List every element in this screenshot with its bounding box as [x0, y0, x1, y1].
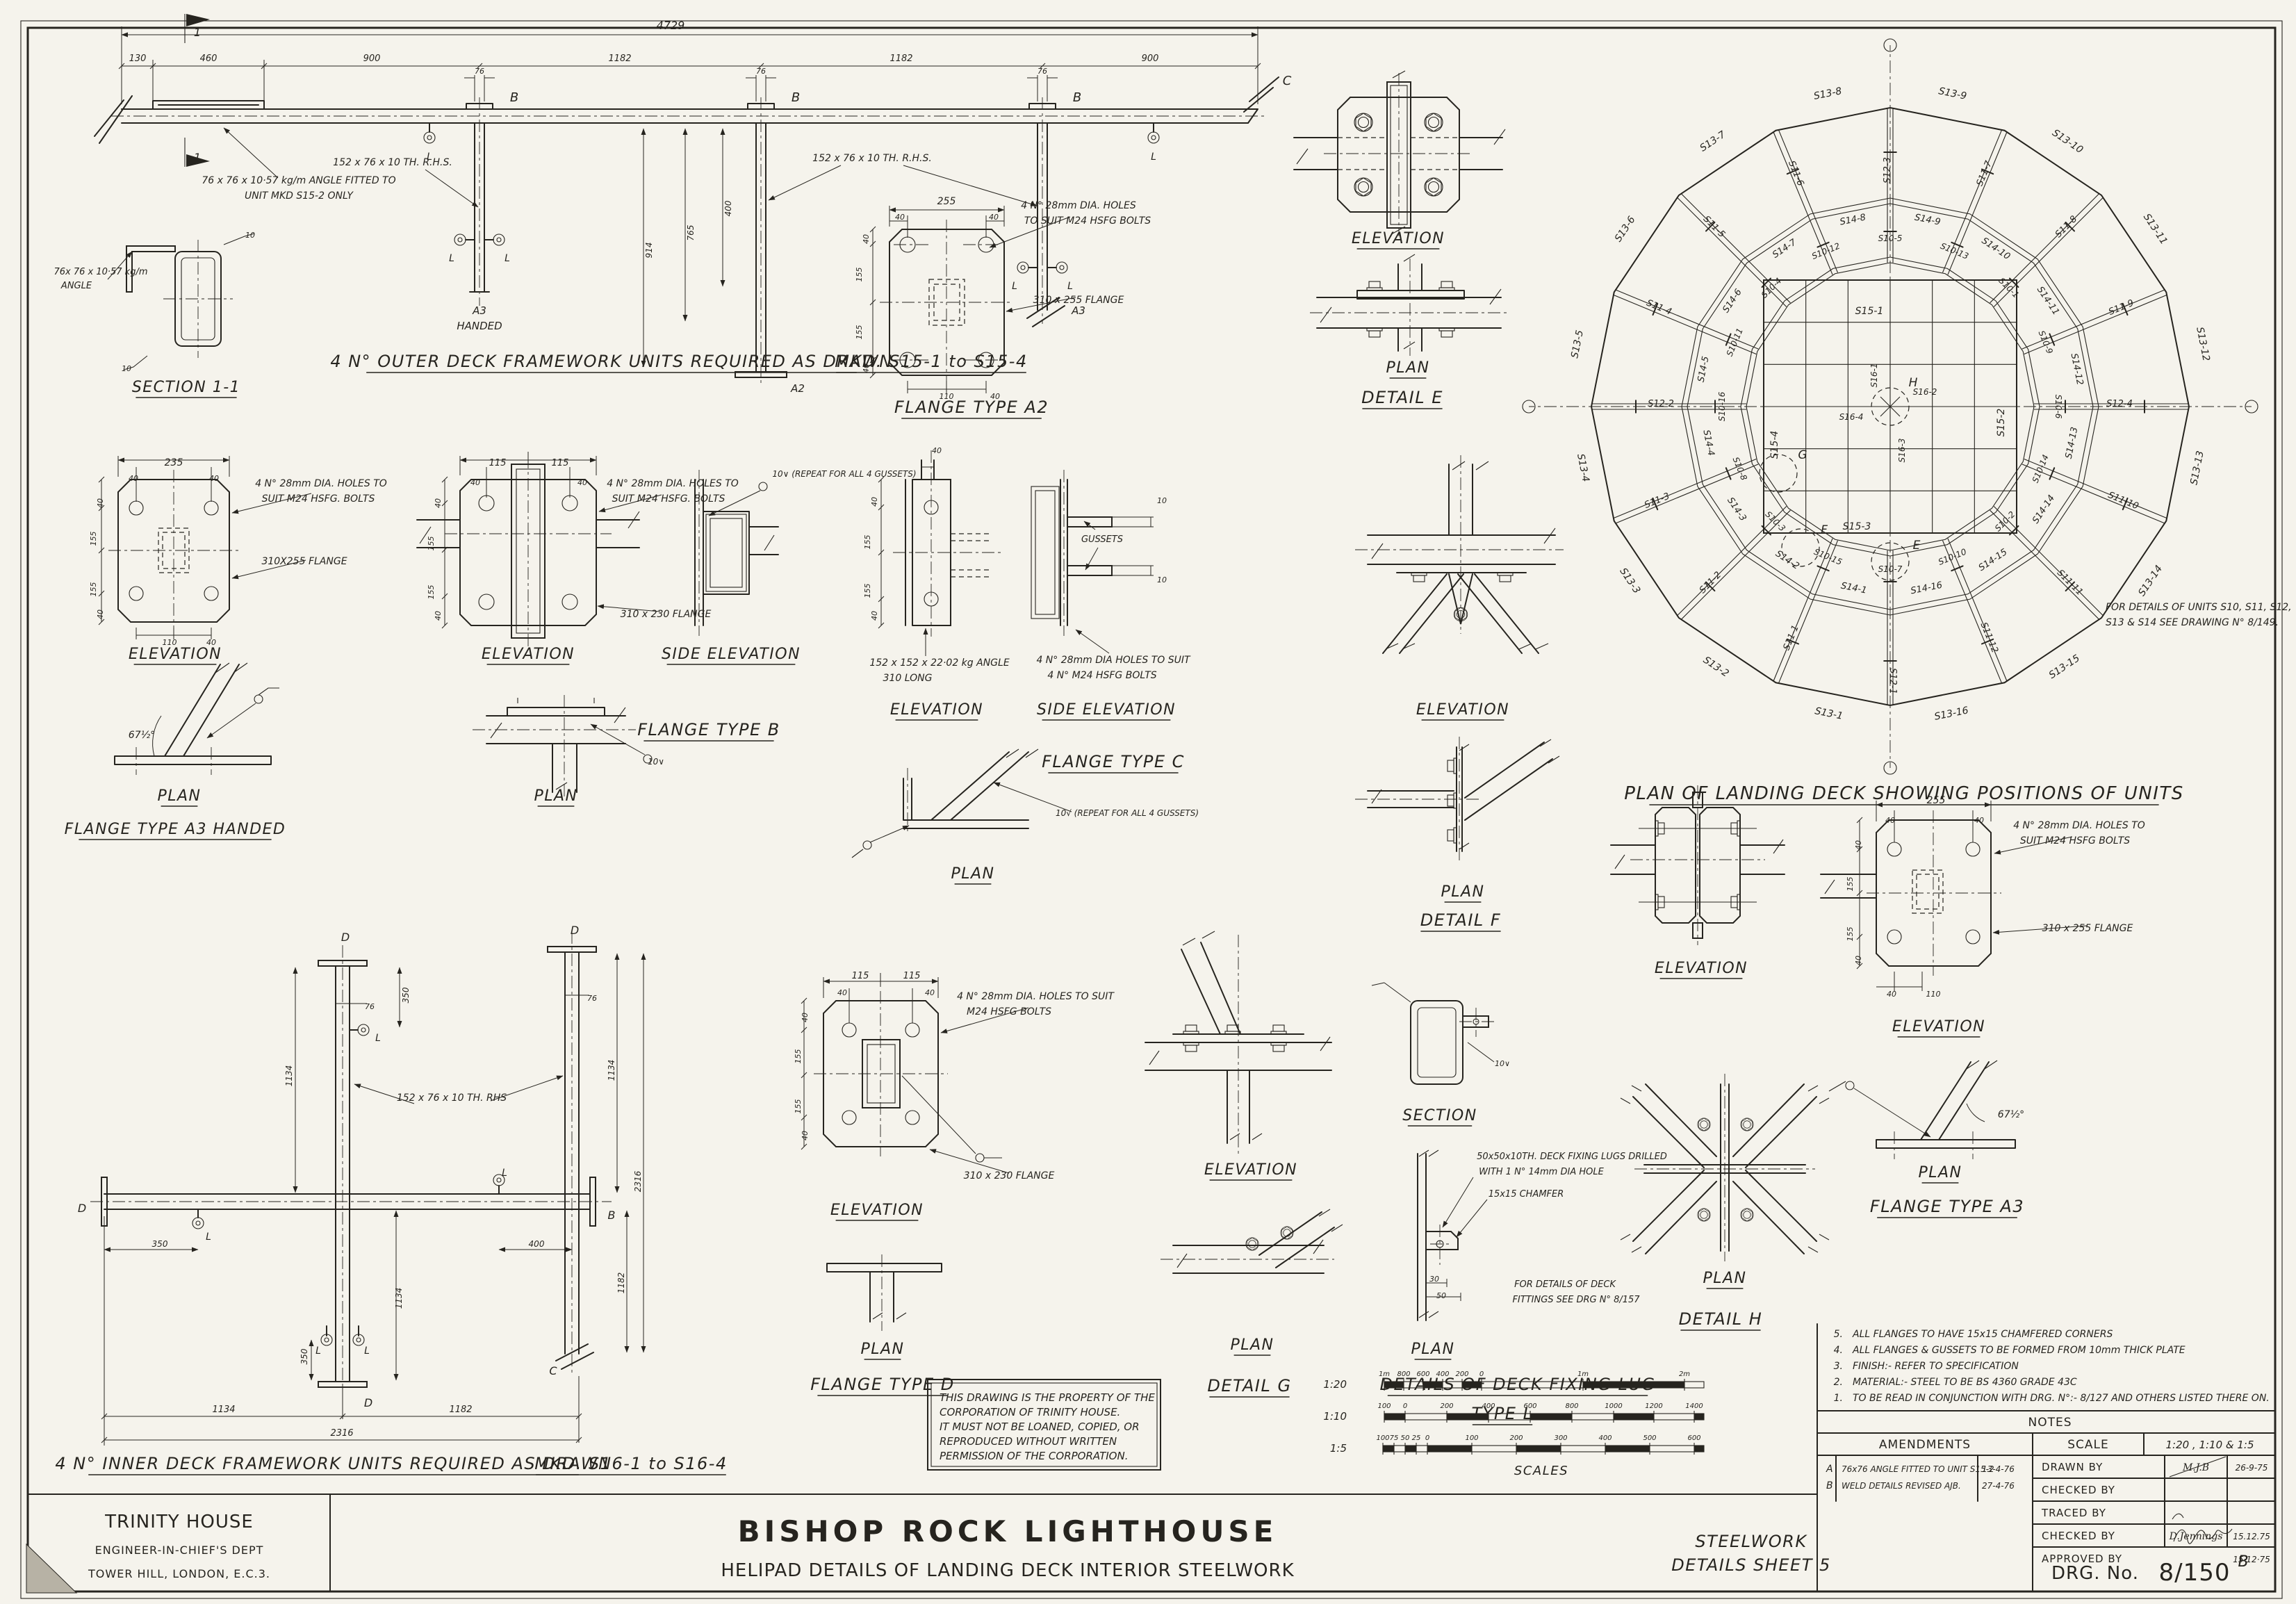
- view-landing-deck-plan: [1523, 39, 2258, 774]
- label: 76x 76 x 10·57 kg/m: [54, 267, 147, 277]
- label: S14-5: [1696, 355, 1712, 383]
- label: 1134: [607, 1060, 616, 1081]
- label: 800: [1397, 1370, 1410, 1378]
- label: D: [571, 924, 579, 937]
- label: 100: [1465, 1434, 1478, 1442]
- label: 40: [989, 213, 999, 222]
- label: FINISH:- REFER TO SPECIFICATION: [1853, 1361, 2019, 1372]
- label: 765: [686, 225, 696, 241]
- label: 900: [1142, 54, 1159, 64]
- label: S13-2: [1701, 655, 1731, 680]
- label: 4 N° 28mm DIA HOLES TO SUIT: [1036, 655, 1191, 666]
- label: 1182: [608, 54, 631, 64]
- label: S11-4: [1645, 298, 1673, 318]
- label: 152 x 152 x 22·02 kg ANGLE: [869, 657, 1009, 669]
- label: 4 N° OUTER DECK FRAMEWORK UNITS REQUIRED…: [330, 352, 892, 371]
- label: M24 HSFG BOLTS: [967, 1006, 1051, 1017]
- label: S10-16: [1717, 391, 1727, 421]
- label: PLAN: [534, 787, 577, 805]
- label: B: [1073, 90, 1081, 105]
- label: S16-1: [1869, 363, 1879, 388]
- label: 50: [1436, 1291, 1446, 1300]
- label: 3.: [1834, 1361, 1843, 1372]
- label: DETAIL H: [1679, 1309, 1763, 1329]
- label: S12-4: [2106, 399, 2133, 409]
- label: 1182: [449, 1405, 472, 1415]
- label: 155: [794, 1099, 803, 1114]
- label: S14-3: [1725, 496, 1748, 523]
- signoff-label: CHECKED BY: [2042, 1484, 2115, 1496]
- label: 800: [1565, 1402, 1578, 1410]
- label: G: [1798, 448, 1807, 462]
- label: 155: [855, 268, 864, 282]
- label: S11-11: [2055, 568, 2085, 598]
- label: 40: [870, 497, 879, 507]
- label: 1400: [1685, 1402, 1703, 1410]
- label: E: [1913, 539, 1921, 553]
- label: 76: [1038, 67, 1047, 76]
- label: 155: [863, 535, 872, 550]
- label: 50x50x10TH. DECK FIXING LUGS DRILLED: [1477, 1152, 1667, 1162]
- label: 460: [200, 54, 218, 64]
- label: H: [1909, 376, 1918, 390]
- label: 1134: [212, 1405, 235, 1415]
- label: ELEVATION: [1416, 701, 1509, 719]
- label: S13-16: [1933, 705, 1969, 722]
- label: S12-3: [1883, 157, 1893, 183]
- label: 255: [937, 196, 956, 207]
- view-inner-deck-framework: DDDDBCLLLLL35076761134113423161182350400…: [55, 924, 727, 1475]
- label: S14-12: [2069, 352, 2085, 386]
- label: 40: [1854, 840, 1863, 850]
- label: PLAN: [951, 865, 994, 883]
- label: 10: [1157, 575, 1167, 584]
- label: 0: [1403, 1402, 1407, 1410]
- label: 40: [837, 988, 847, 997]
- label: 67½°: [129, 730, 155, 741]
- label: S13-4: [1575, 453, 1591, 483]
- label: 40: [862, 363, 871, 373]
- label: 155: [794, 1049, 803, 1064]
- label: MKD. S16-1 to S16-4: [534, 1454, 727, 1473]
- label: 26-9-75: [2236, 1463, 2268, 1473]
- label: 40: [470, 478, 480, 487]
- label: 400: [1436, 1370, 1449, 1378]
- label: S13-9: [1937, 85, 1967, 102]
- label: FOR DETAILS OF UNITS S10, S11, S12,: [2106, 602, 2292, 613]
- label: 40: [96, 498, 105, 508]
- label: 350: [152, 1239, 168, 1249]
- label: 100: [1376, 1434, 1389, 1442]
- label: S10-2: [1993, 509, 2017, 534]
- view-flange-type-a2: 25540404015515540110404 N° 28mm DIA. HOL…: [855, 196, 1151, 418]
- label: S12-1: [1887, 668, 1898, 694]
- label: 27-4-76: [1982, 1481, 2015, 1491]
- label: 310 x 255 FLANGE: [1033, 295, 1124, 306]
- label: S15-1: [1855, 306, 1884, 317]
- label: L: [449, 253, 454, 264]
- label: TO SUIT M24 HSFG BOLTS: [1024, 215, 1151, 227]
- label: 1182: [616, 1272, 626, 1294]
- label: 1m: [1577, 1370, 1589, 1378]
- title-block: NOTES AMENDMENTS SCALE 1:20 , 1:10 & 1:5…: [1817, 1324, 2275, 1591]
- label: B: [510, 90, 518, 105]
- label: 115: [852, 971, 869, 981]
- label: 1182: [889, 54, 912, 64]
- label: 350: [401, 987, 411, 1003]
- label: 1: [194, 26, 201, 39]
- label: S13-14: [2136, 564, 2165, 598]
- label: 1: [194, 151, 201, 164]
- label: FLANGE TYPE A2: [894, 398, 1049, 417]
- label: ELEVATION: [1892, 1018, 1985, 1036]
- label: 1:10: [1323, 1410, 1347, 1423]
- label: 4729: [657, 19, 685, 32]
- bottom-strip: TRINITY HOUSE ENGINEER-IN-CHIEF'S DEPT T…: [26, 1494, 1831, 1593]
- label: S11-1: [1782, 623, 1801, 652]
- label: 1:20: [1323, 1378, 1347, 1391]
- label: S14-9: [1914, 213, 1942, 228]
- label: WITH 1 N° 14mm DIA HOLE: [1479, 1167, 1604, 1177]
- label: 110: [1926, 990, 1941, 999]
- scale-label: SCALE: [2067, 1438, 2109, 1452]
- label: ELEVATION: [1655, 960, 1748, 977]
- amendments-header: AMENDMENTS: [1879, 1438, 1971, 1452]
- label: S14-16: [1910, 580, 1943, 597]
- signoff-label: DRAWN BY: [2042, 1461, 2103, 1473]
- label: FLANGE TYPE D: [810, 1375, 955, 1394]
- label: 155: [1846, 927, 1855, 942]
- label: PLAN: [157, 787, 201, 805]
- label: HANDED: [457, 320, 502, 332]
- label: 76 x 76 x 10·57 kg/m ANGLE FITTED TO: [202, 175, 395, 186]
- label: F: [1821, 523, 1828, 537]
- label: 0: [1479, 1370, 1484, 1378]
- label: 76x76 ANGLE FITTED TO UNIT S15-2: [1842, 1464, 1994, 1474]
- label: 600: [1416, 1370, 1429, 1378]
- notes-list: 5.ALL FLANGES TO HAVE 15x15 CHAMFERED CO…: [1834, 1329, 2270, 1404]
- label: DETAIL F: [1420, 910, 1501, 930]
- label: 2316: [330, 1428, 353, 1439]
- label: 914: [644, 243, 654, 259]
- label: ALL FLANGES & GUSSETS TO BE FORMED FROM …: [1852, 1345, 2186, 1356]
- label: 900: [363, 54, 381, 64]
- label: 350: [300, 1348, 309, 1364]
- label: S14-6: [1721, 287, 1744, 315]
- label: S13-5: [1569, 329, 1586, 359]
- label: 4 N° 28mm DIA. HOLES TO: [607, 478, 739, 489]
- label: L: [502, 1168, 507, 1179]
- label: IT MUST NOT BE LOANED, COPIED, OR: [940, 1421, 1140, 1433]
- checked-by-strike: [2170, 1457, 2226, 1477]
- label: 4 N° INNER DECK FRAMEWORK UNITS REQUIRED…: [55, 1454, 612, 1473]
- label: S13-13: [2188, 450, 2206, 486]
- label: A3: [1071, 304, 1085, 317]
- label: 10√ (REPEAT FOR ALL 4 GUSSETS): [1056, 808, 1199, 818]
- label: 30: [1429, 1275, 1439, 1284]
- label: 1:5: [1330, 1442, 1347, 1455]
- label: 40: [925, 988, 935, 997]
- label: 115: [903, 971, 921, 981]
- label: ALL FLANGES TO HAVE 15x15 CHAMFERED CORN…: [1852, 1329, 2113, 1340]
- label: L: [1012, 281, 1017, 292]
- label: L: [206, 1231, 211, 1243]
- label: S15-3: [1843, 521, 1871, 532]
- label: FITTINGS SEE DRG N° 8/157: [1512, 1295, 1640, 1305]
- label: REPRODUCED WITHOUT WRITTEN: [940, 1435, 1117, 1448]
- label: 155: [427, 585, 436, 600]
- label: 200: [1455, 1370, 1468, 1378]
- label: S14-10: [1980, 236, 2012, 262]
- label: S14-1: [1840, 581, 1868, 596]
- label: ELEVATION: [129, 646, 222, 663]
- sheet-title-1: STEELWORK: [1695, 1532, 1807, 1551]
- label: PLAN: [1386, 359, 1429, 377]
- label: S10-3: [1764, 509, 1788, 534]
- view-flange-type-c: 404015515540152 x 152 x 22·02 kg ANGLE31…: [852, 446, 1199, 884]
- signoff-value: D.Jennings: [2169, 1531, 2223, 1542]
- label: L: [364, 1345, 370, 1357]
- label: SUIT M24 HSFG. BOLTS: [262, 493, 375, 505]
- drawing-sheet: 472913046090011821182900767676BBBC11LLLL…: [0, 0, 2296, 1604]
- label: PLAN: [1703, 1270, 1746, 1287]
- label: 115: [552, 458, 569, 468]
- label: 2316: [633, 1170, 643, 1192]
- label: FOR DETAILS OF DECK: [1514, 1279, 1616, 1290]
- label: S13-6: [1613, 214, 1638, 244]
- label: SIDE ELEVATION: [662, 646, 801, 663]
- org-line-2: ENGINEER-IN-CHIEF'S DEPT: [95, 1544, 264, 1557]
- label: B: [792, 90, 800, 105]
- label: S14-7: [1771, 237, 1798, 261]
- label: S11-9: [2107, 298, 2135, 318]
- label: 600: [1687, 1434, 1700, 1442]
- label: SUIT M24 HSFG BOLTS: [2020, 835, 2130, 846]
- label: 235: [165, 457, 183, 468]
- label: L: [315, 1345, 321, 1357]
- label: 40: [1854, 956, 1863, 965]
- label: 40: [1885, 816, 1895, 825]
- org-line-3: TOWER HILL, LONDON, E.C.3.: [88, 1567, 270, 1580]
- sheet-title-2: DETAILS SHEET 5: [1671, 1555, 1831, 1575]
- view-detail-e: ELEVATIONPLANDETAIL E: [1294, 71, 1508, 409]
- label: 4 N° M24 HSFG BOLTS: [1047, 670, 1156, 681]
- label: ANGLE: [60, 281, 92, 291]
- page-fold: [26, 1544, 76, 1593]
- label: 76: [475, 67, 484, 76]
- label: S15-4: [1769, 431, 1780, 459]
- signoff-rows: DRAWN BYM.J.B26-9-75CHECKED BYTRACED BYC…: [2041, 1461, 2270, 1565]
- label: 155: [427, 537, 436, 551]
- label: 40: [434, 498, 443, 508]
- label: FLANGE TYPE B: [637, 720, 780, 739]
- label: S13-3: [1617, 566, 1642, 596]
- label: S14-11: [2035, 285, 2061, 318]
- label: FLANGE TYPE A3: [1870, 1197, 2024, 1216]
- label: ELEVATION: [1352, 230, 1445, 247]
- label: S16-4: [1839, 412, 1864, 422]
- label: 40: [870, 611, 879, 621]
- label: 40: [1887, 990, 1896, 999]
- label: S13-8: [1813, 85, 1843, 102]
- label: 76: [756, 67, 766, 76]
- label: ELEVATION: [890, 701, 983, 719]
- drg-number: 8/150: [2159, 1559, 2231, 1587]
- label: 200: [1440, 1402, 1453, 1410]
- label: D: [341, 931, 350, 944]
- label: 40: [129, 474, 138, 483]
- drg-revision: B: [2238, 1553, 2248, 1571]
- property-notice: THIS DRAWING IS THE PROPERTY OF THECORPO…: [928, 1380, 1161, 1470]
- label: THIS DRAWING IS THE PROPERTY OF THE: [940, 1391, 1155, 1404]
- label: 1000: [1605, 1402, 1622, 1410]
- label: S11-2: [1698, 570, 1723, 596]
- label: 10: [1157, 496, 1167, 505]
- label: CORPORATION OF TRINITY HOUSE.: [940, 1406, 1120, 1418]
- label: 1134: [284, 1065, 294, 1087]
- label: 15.12.75: [2233, 1532, 2270, 1541]
- label: PERMISSION OF THE CORPORATION.: [940, 1450, 1128, 1462]
- label: 155: [1846, 877, 1855, 892]
- label: 500: [1643, 1434, 1656, 1442]
- notes-header: NOTES: [2028, 1416, 2072, 1430]
- label: 10∨: [1495, 1059, 1510, 1068]
- label: PLAN: [860, 1341, 904, 1358]
- label: L: [375, 1033, 381, 1044]
- view-flange-type-b: 115115404040155155404 N° 28mm DIA. HOLES…: [417, 452, 917, 806]
- label: 310 x 230 FLANGE: [621, 609, 712, 620]
- label: 310X255 FLANGE: [261, 556, 347, 567]
- label: 152 x 76 x 10 TH. RHS: [397, 1092, 507, 1104]
- label: 50: [1401, 1434, 1410, 1442]
- label: L: [505, 253, 510, 264]
- label: 40: [209, 474, 219, 483]
- label: FLANGE TYPE A3 HANDED: [65, 821, 286, 838]
- label: DETAIL E: [1361, 388, 1443, 407]
- label: 76: [587, 994, 597, 1003]
- signoff-label: CHECKED BY: [2042, 1530, 2115, 1542]
- label: 25: [1412, 1434, 1421, 1442]
- label: GUSSETS: [1081, 534, 1123, 545]
- label: 15x15 CHAMFER: [1489, 1189, 1564, 1200]
- label: S14-8: [1839, 213, 1867, 228]
- label: PLAN OF LANDING DECK SHOWING POSITIONS O…: [1624, 783, 2184, 804]
- label: S13-15: [2047, 653, 2082, 681]
- label: 100: [1377, 1402, 1391, 1410]
- label: 40: [1974, 816, 1984, 825]
- label: ELEVATION: [830, 1202, 924, 1219]
- amendments-rows: A76x76 ANGLE FITTED TO UNIT S15-213-4-76…: [1826, 1464, 2015, 1491]
- view-detail-f: ELEVATIONPLANDETAIL F: [1355, 455, 1564, 931]
- label: S14-4: [1700, 429, 1716, 457]
- label: 2.: [1834, 1377, 1843, 1388]
- label: PLAN: [1411, 1341, 1454, 1358]
- label: C: [549, 1364, 557, 1377]
- main-title: BISHOP ROCK LIGHTHOUSE: [738, 1514, 1278, 1548]
- label: 600: [1523, 1402, 1536, 1410]
- checked-signature-flourish: [2172, 1514, 2183, 1519]
- label: 2m: [1679, 1370, 1690, 1378]
- label: A3: [472, 304, 486, 317]
- label: MATERIAL:- STEEL TO BE BS 4360 GRADE 43C: [1853, 1377, 2077, 1388]
- label: S13-11: [2141, 212, 2170, 247]
- label: 40: [96, 609, 105, 619]
- label: SIDE ELEVATION: [1037, 701, 1176, 719]
- label: 1.: [1834, 1393, 1843, 1404]
- label: UNIT MKD S15-2 ONLY: [245, 190, 354, 202]
- label: SECTION: [1402, 1107, 1477, 1124]
- label: 310 LONG: [883, 673, 933, 684]
- label: A2: [790, 382, 805, 395]
- label: SECTION 1-1: [132, 379, 240, 396]
- label: WELD DETAILS REVISED AJB.: [1842, 1481, 1961, 1491]
- label: 67½°: [1998, 1109, 2024, 1120]
- label: D: [78, 1202, 86, 1215]
- scale-value: 1:20 , 1:10 & 1:5: [2165, 1439, 2254, 1451]
- label: 200: [1509, 1434, 1523, 1442]
- label: 4 N° 28mm DIA. HOLES: [1021, 200, 1136, 211]
- label: S10-5: [1878, 234, 1903, 243]
- label: 1m: [1379, 1370, 1390, 1378]
- label: 155: [89, 532, 98, 546]
- label: 40: [932, 446, 942, 455]
- label: 152 x 76 x 10 TH. R.H.S.: [812, 153, 932, 164]
- label: S10-6: [2053, 395, 2063, 419]
- label: 5.: [1834, 1329, 1843, 1340]
- signoff-label: TRACED BY: [2041, 1507, 2106, 1519]
- label: S14-13: [2064, 426, 2081, 459]
- label: S16-3: [1897, 439, 1907, 463]
- label: 0: [1425, 1434, 1429, 1442]
- drg-label: DRG. No.: [2051, 1563, 2139, 1584]
- label: S11-5: [1701, 214, 1727, 240]
- label: 40: [895, 213, 905, 222]
- view-flange-type-a3-handed: 23540404015515540110404 N° 28mm DIA. HOL…: [65, 456, 387, 840]
- label: 75: [1390, 1434, 1399, 1442]
- label: FLANGE TYPE C: [1042, 752, 1185, 771]
- label: 1200: [1645, 1402, 1662, 1410]
- label: S13-12: [2194, 326, 2211, 362]
- view-flange-type-a3: 25540404015515540401104 N° 28mm DIA. HOL…: [1821, 795, 2145, 1218]
- scales-caption: SCALES: [1514, 1464, 1568, 1478]
- label: S13-10: [2050, 127, 2085, 156]
- label: 155: [855, 325, 864, 340]
- label: 40: [434, 611, 443, 621]
- org-line-1: TRINITY HOUSE: [104, 1512, 254, 1532]
- label: PLAN: [1918, 1164, 1962, 1181]
- label: 152 x 76 x 10 TH. R.H.S.: [333, 157, 452, 168]
- view-deck-fixing-lug: 10∨SECTION50x50x10TH. DECK FIXING LUGS D…: [1372, 983, 1667, 1425]
- label: 4 N° 28mm DIA. HOLES TO: [255, 478, 387, 489]
- label: 4 N° 28mm DIA. HOLES TO: [2013, 820, 2145, 831]
- label: 310 x 255 FLANGE: [2042, 923, 2133, 934]
- label: B: [608, 1209, 616, 1222]
- label: 155: [89, 582, 98, 597]
- label: 40: [801, 1013, 810, 1022]
- label: ELEVATION: [482, 646, 575, 663]
- label: 76: [365, 1002, 375, 1011]
- label: 130: [129, 54, 147, 64]
- label: S15-2: [1996, 409, 2007, 437]
- label: S14-2: [1773, 548, 1801, 571]
- view-detail-g: ELEVATIONPLANDETAIL G: [1145, 931, 1343, 1397]
- label: D: [364, 1396, 372, 1409]
- label: 4 N° 28mm DIA. HOLES TO SUIT: [957, 991, 1115, 1002]
- label: 10∨: [648, 757, 664, 767]
- label: B: [1826, 1480, 1833, 1491]
- label: S13-7: [1698, 129, 1728, 154]
- label: 40: [801, 1131, 810, 1140]
